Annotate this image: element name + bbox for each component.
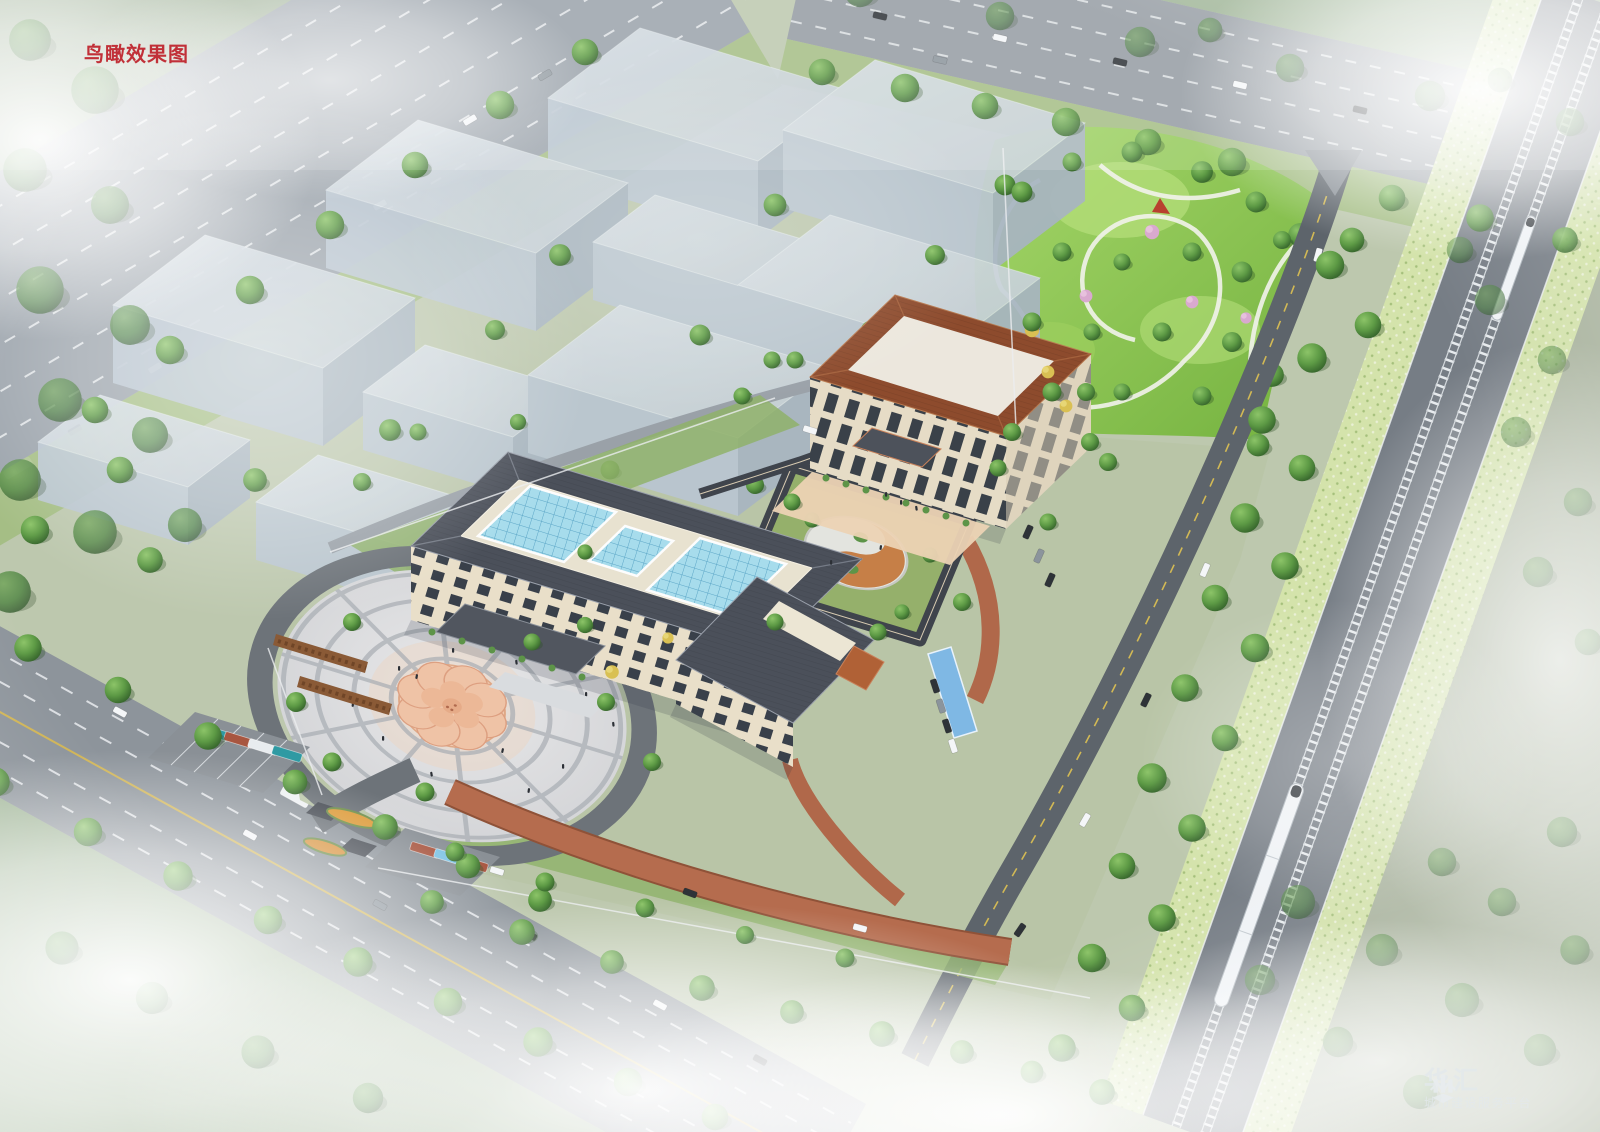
view-title: 鸟瞰效果图: [84, 38, 189, 67]
rendering-canvas: [0, 0, 1600, 1132]
huahui-logo-icon: [1424, 1068, 1462, 1106]
fog-layer: [0, 0, 1600, 1132]
aerial-rendering: 鸟瞰效果图 华汇 城市建设服务平台: [0, 0, 1600, 1132]
watermark: 华汇 城市建设服务平台: [1424, 1068, 1532, 1110]
